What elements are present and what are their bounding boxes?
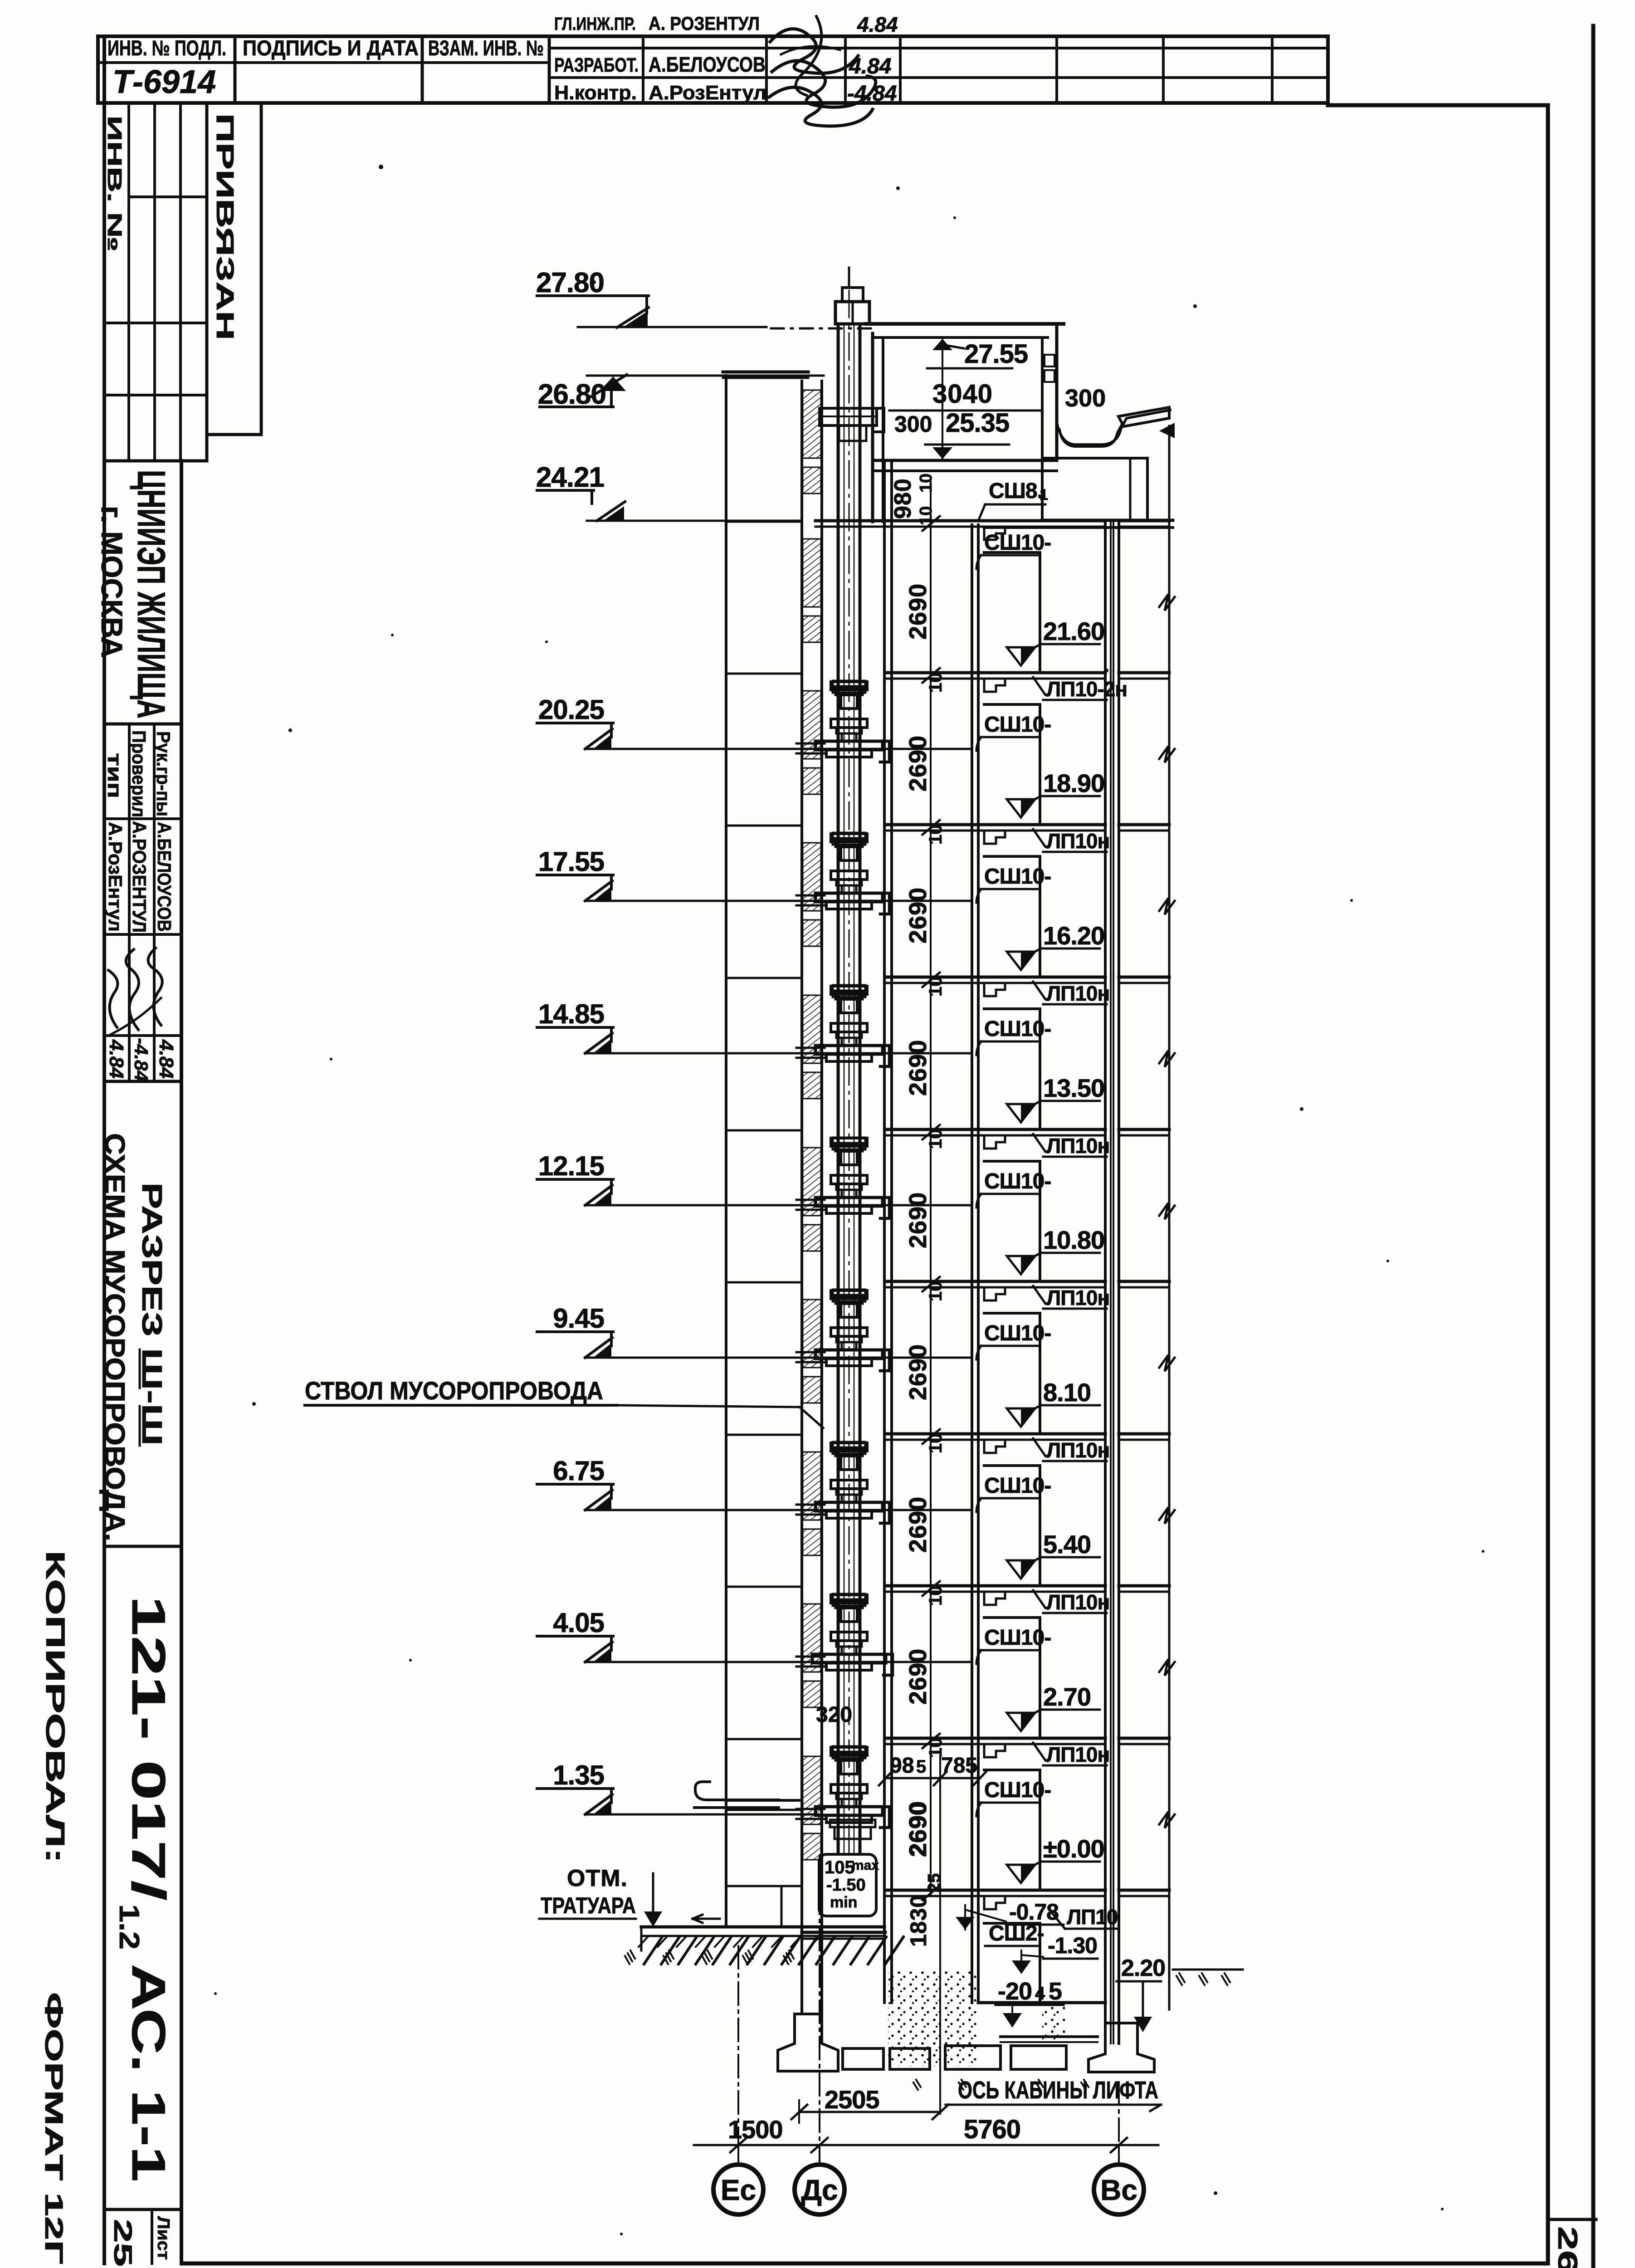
svg-text:АС. 1-1: АС. 1-1	[122, 1964, 175, 2182]
svg-text:4.84: 4.84	[155, 1039, 177, 1079]
svg-text:КОПИРОВАЛ:: КОПИРОВАЛ:	[40, 1550, 70, 1863]
svg-text:ИНВ. № ПОДЛ.: ИНВ. № ПОДЛ.	[107, 36, 226, 60]
svg-text:10: 10	[926, 1586, 946, 1606]
svg-text:3040: 3040	[932, 379, 993, 409]
svg-text:ЛП10н: ЛП10н	[1046, 982, 1109, 1005]
svg-text:А.БЕЛОУСОВ: А.БЕЛОУСОВ	[154, 822, 175, 932]
svg-text:-0.78: -0.78	[1009, 1899, 1059, 1925]
svg-text:СШ10-: СШ10-	[984, 1017, 1051, 1041]
svg-text:Ес: Ес	[721, 2174, 756, 2206]
svg-text:ПОДПИСЬ И ДАТА: ПОДПИСЬ И ДАТА	[243, 36, 419, 60]
svg-text:СШ8.: СШ8.	[989, 479, 1043, 503]
svg-text:25: 25	[925, 1873, 944, 1892]
svg-text:26: 26	[1552, 2226, 1583, 2268]
svg-text:ЛП10н: ЛП10н	[1046, 1286, 1109, 1310]
svg-text:2690: 2690	[905, 1802, 932, 1856]
svg-text:1500: 1500	[728, 2115, 783, 2144]
svg-text:17.55: 17.55	[538, 846, 604, 877]
svg-text:СТВОЛ МУСОРОПРОВОДА: СТВОЛ МУСОРОПРОВОДА	[305, 1376, 603, 1405]
svg-text:Т-6914: Т-6914	[112, 64, 216, 100]
svg-text:10: 10	[917, 474, 936, 493]
svg-text:ЦНИИЭП ЖИЛИЩА: ЦНИИЭП ЖИЛИЩА	[129, 470, 173, 719]
svg-text:5.40: 5.40	[1043, 1530, 1091, 1559]
svg-text:А. РОЗЕНТУЛ: А. РОЗЕНТУЛ	[649, 13, 760, 34]
svg-text:СШ10-: СШ10-	[984, 865, 1051, 889]
svg-text:785: 785	[941, 1754, 977, 1778]
svg-text:21.60: 21.60	[1043, 617, 1104, 645]
svg-text:4.84: 4.84	[105, 1039, 127, 1079]
svg-text:РАЗРАБОТ.: РАЗРАБОТ.	[554, 54, 639, 76]
svg-text:10: 10	[926, 977, 946, 997]
svg-text:2690: 2690	[904, 1192, 932, 1248]
svg-text:ПРИВЯЗАН: ПРИВЯЗАН	[211, 113, 239, 340]
svg-text:СШ10-: СШ10-	[984, 1778, 1051, 1802]
svg-text:-20: -20	[998, 1978, 1032, 2005]
svg-text:10: 10	[926, 825, 946, 845]
svg-text:ИНВ. №: ИНВ. №	[103, 116, 126, 252]
svg-text:121- 017/: 121- 017/	[122, 1596, 175, 1901]
svg-text:10.80: 10.80	[1043, 1226, 1104, 1254]
svg-text:8.10: 8.10	[1043, 1378, 1091, 1407]
svg-text:2690: 2690	[904, 1648, 932, 1705]
svg-text:320: 320	[816, 1703, 852, 1727]
svg-text:ОТМ.: ОТМ.	[567, 1865, 628, 1892]
svg-text:ЛП10н: ЛП10н	[1046, 1438, 1109, 1462]
svg-text:10: 10	[926, 1433, 946, 1454]
svg-text:ЛП10н: ЛП10н	[1046, 1743, 1109, 1766]
svg-text:Вс: Вс	[1100, 2174, 1137, 2206]
svg-text:10: 10	[926, 1281, 946, 1302]
svg-text:ФОРМАТ 12Г: ФОРМАТ 12Г	[40, 1992, 68, 2264]
svg-text:10: 10	[926, 673, 946, 693]
svg-text:СШ10-: СШ10-	[984, 1321, 1051, 1345]
svg-text:300: 300	[1065, 385, 1106, 412]
svg-text:24.21: 24.21	[536, 462, 604, 493]
svg-text:СШ10-: СШ10-	[984, 713, 1051, 737]
svg-text:-1.50: -1.50	[826, 1876, 866, 1895]
svg-text:5760: 5760	[964, 2115, 1020, 2144]
svg-text:12.15: 12.15	[538, 1151, 604, 1181]
svg-text:Рук.гр-пы: Рук.гр-пы	[153, 731, 174, 816]
svg-text:г. МОСКВА: г. МОСКВА	[95, 506, 129, 658]
svg-text:2505: 2505	[825, 2085, 879, 2114]
svg-text:10: 10	[917, 506, 936, 525]
svg-text:4: 4	[1035, 1984, 1045, 2004]
svg-text:ГЛ.ИНЖ.ПР.: ГЛ.ИНЖ.ПР.	[554, 14, 636, 34]
svg-text:2690: 2690	[904, 583, 932, 640]
svg-text:20.25: 20.25	[538, 694, 604, 725]
svg-text:13.50: 13.50	[1043, 1074, 1104, 1102]
svg-text:А.БЕЛОУСОВ: А.БЕЛОУСОВ	[649, 53, 766, 76]
svg-text:25: 25	[109, 2219, 137, 2267]
svg-text:-4.84: -4.84	[131, 1038, 152, 1081]
svg-text:16.20: 16.20	[1043, 921, 1104, 950]
svg-text:10: 10	[926, 1129, 946, 1149]
svg-text:300: 300	[894, 411, 932, 437]
svg-text:18.90: 18.90	[1043, 769, 1104, 797]
svg-text:105: 105	[825, 1857, 855, 1877]
svg-text:980: 980	[890, 478, 916, 519]
svg-text:А.РОЗЕНТУЛ: А.РОЗЕНТУЛ	[129, 821, 150, 933]
svg-text:max: max	[852, 1858, 879, 1873]
svg-text:5: 5	[916, 1757, 926, 1777]
svg-text:ВЗАМ. ИНВ. №: ВЗАМ. ИНВ. №	[428, 36, 544, 60]
svg-text:ЛП10н: ЛП10н	[1046, 829, 1109, 853]
svg-text:ЛП10-2н: ЛП10-2н	[1046, 677, 1127, 701]
svg-text:4.05: 4.05	[553, 1608, 604, 1638]
svg-text:СХЕМА МУСОРОПРОВОДА.: СХЕМА МУСОРОПРОВОДА.	[99, 1133, 130, 1541]
svg-text:1830: 1830	[906, 1895, 931, 1947]
svg-text:2690: 2690	[904, 887, 932, 943]
svg-text:-1.30: -1.30	[1048, 1933, 1097, 1958]
svg-text:2690: 2690	[904, 735, 932, 792]
svg-text:ЛП10н: ЛП10н	[1046, 1134, 1109, 1158]
svg-text:1.2: 1.2	[113, 1904, 145, 1950]
svg-text:2.70: 2.70	[1043, 1682, 1091, 1711]
svg-text:min: min	[830, 1894, 857, 1911]
svg-text:±0.00: ±0.00	[1043, 1834, 1104, 1863]
svg-text:2690: 2690	[904, 1344, 932, 1400]
svg-text:СШ10-: СШ10-	[984, 1626, 1051, 1650]
svg-text:2690: 2690	[904, 1040, 932, 1096]
svg-text:9.45: 9.45	[553, 1303, 604, 1334]
svg-text:27.55: 27.55	[964, 339, 1028, 369]
svg-text:4.84: 4.84	[857, 13, 898, 36]
svg-text:Н.контр.: Н.контр.	[554, 82, 637, 104]
svg-text:ЛП10н: ЛП10н	[1046, 1590, 1109, 1614]
svg-text:Проверил: Проверил	[128, 730, 150, 817]
svg-text:25.35: 25.35	[946, 408, 1009, 438]
svg-text:СШ10-: СШ10-	[984, 1169, 1051, 1193]
svg-text:1: 1	[1040, 486, 1048, 503]
svg-text:98: 98	[890, 1754, 914, 1778]
svg-text:РАЗРЕЗ: РАЗРЕЗ	[136, 1183, 167, 1337]
svg-text:А.РозЕнтул: А.РозЕнтул	[105, 822, 126, 932]
svg-text:СШ10-: СШ10-	[984, 531, 1051, 555]
svg-text:ЛП10: ЛП10	[1067, 1905, 1118, 1929]
svg-text:ОСЬ КАБИНЫ ЛИФТА: ОСЬ КАБИНЫ ЛИФТА	[958, 2077, 1158, 2104]
svg-text:тип: тип	[103, 753, 126, 798]
svg-text:СШ2-: СШ2-	[989, 1921, 1044, 1945]
svg-text:2690: 2690	[904, 1496, 932, 1553]
svg-text:ТРАТУАРА: ТРАТУАРА	[541, 1893, 636, 1918]
svg-text:2.20: 2.20	[1121, 1955, 1165, 1981]
svg-text:СШ10-: СШ10-	[984, 1474, 1051, 1498]
svg-text:Лист: Лист	[154, 2216, 173, 2260]
svg-text:5: 5	[1049, 1978, 1062, 2005]
svg-text:А.РозЕнтул: А.РозЕнтул	[649, 82, 766, 104]
svg-text:14.85: 14.85	[538, 999, 604, 1029]
svg-text:Дс: Дс	[801, 2174, 838, 2206]
svg-text:6.75: 6.75	[553, 1456, 604, 1486]
svg-text:1.35: 1.35	[553, 1760, 604, 1790]
